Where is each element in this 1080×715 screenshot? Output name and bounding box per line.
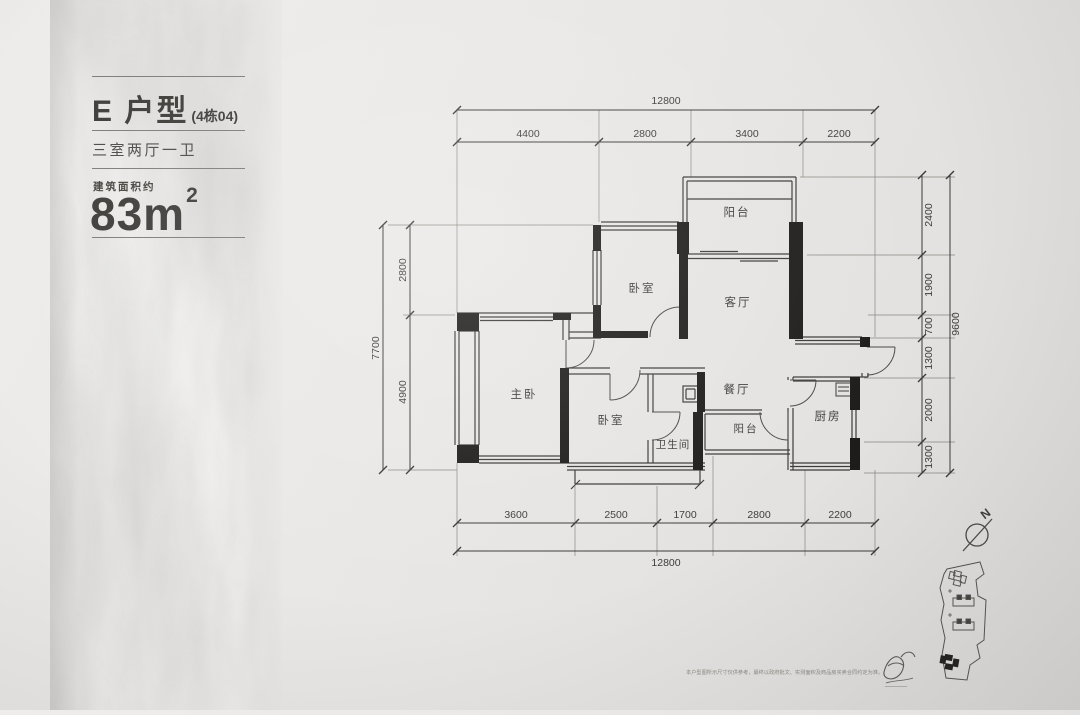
dim-bottom-seg: 2500 [604,509,628,521]
dim-top-total: 12800 [651,95,680,107]
room-label-bedroom-mid: 卧室 [598,413,625,427]
room-label-bedroom-top: 卧室 [629,281,656,295]
floorplan-board: E 户型(4栋04) 三室两厅一卫 建筑面积约 83m2 12800 4400 … [0,0,1080,710]
compass-icon: N [963,506,993,551]
floor-plan: 12800 4400 2800 3400 2200 3600 2500 1700… [0,0,1080,710]
room-label-kitchen: 厨房 [815,410,842,423]
room-label-living: 客厅 [725,295,752,309]
dim-top-seg: 2800 [633,128,657,140]
dim-bottom-total: 12800 [651,557,680,569]
dim-left-total: 7700 [370,336,382,360]
dim-right-seg: 700 [923,317,935,335]
room-label-master: 主卧 [511,388,538,401]
site-building-pinwheel-highlighted [939,653,960,671]
dim-right-seg: 1300 [923,346,935,370]
dim-right-seg: 2000 [923,398,935,422]
dim-bottom-seg: 2800 [747,509,771,521]
disclaimer-text: 本户型图所示尺寸仅供参考，最终以政府批文、实测面积及商品房买卖合同约定为准。 [686,669,886,676]
room-label-balcony-top: 阳台 [724,205,751,219]
dim-right-seg: 2400 [923,203,935,227]
dim-left-seg: 2800 [397,258,409,282]
dim-right-total: 9600 [950,312,962,336]
dim-top-seg: 4400 [516,128,540,140]
walls-structural [457,222,870,470]
dim-left-seg: 4900 [397,380,409,404]
room-label-dining: 餐厅 [724,382,751,396]
dim-right-seg: 1300 [923,445,935,469]
dim-bottom-seg: 2200 [828,509,852,521]
site-map [939,562,986,680]
room-label-bathroom: 卫生间 [656,438,691,451]
dim-top-seg: 2200 [827,128,851,140]
dim-right-seg: 1900 [923,273,935,297]
dim-bottom-seg: 1700 [673,509,697,521]
site-building-pinwheel-top [947,570,967,588]
dim-top-seg: 3400 [735,128,759,140]
developer-logo-icon [884,652,915,687]
room-label-balcony-service: 阳台 [734,422,759,435]
extension-lines [388,110,955,556]
dim-bottom-seg: 3600 [504,509,528,521]
